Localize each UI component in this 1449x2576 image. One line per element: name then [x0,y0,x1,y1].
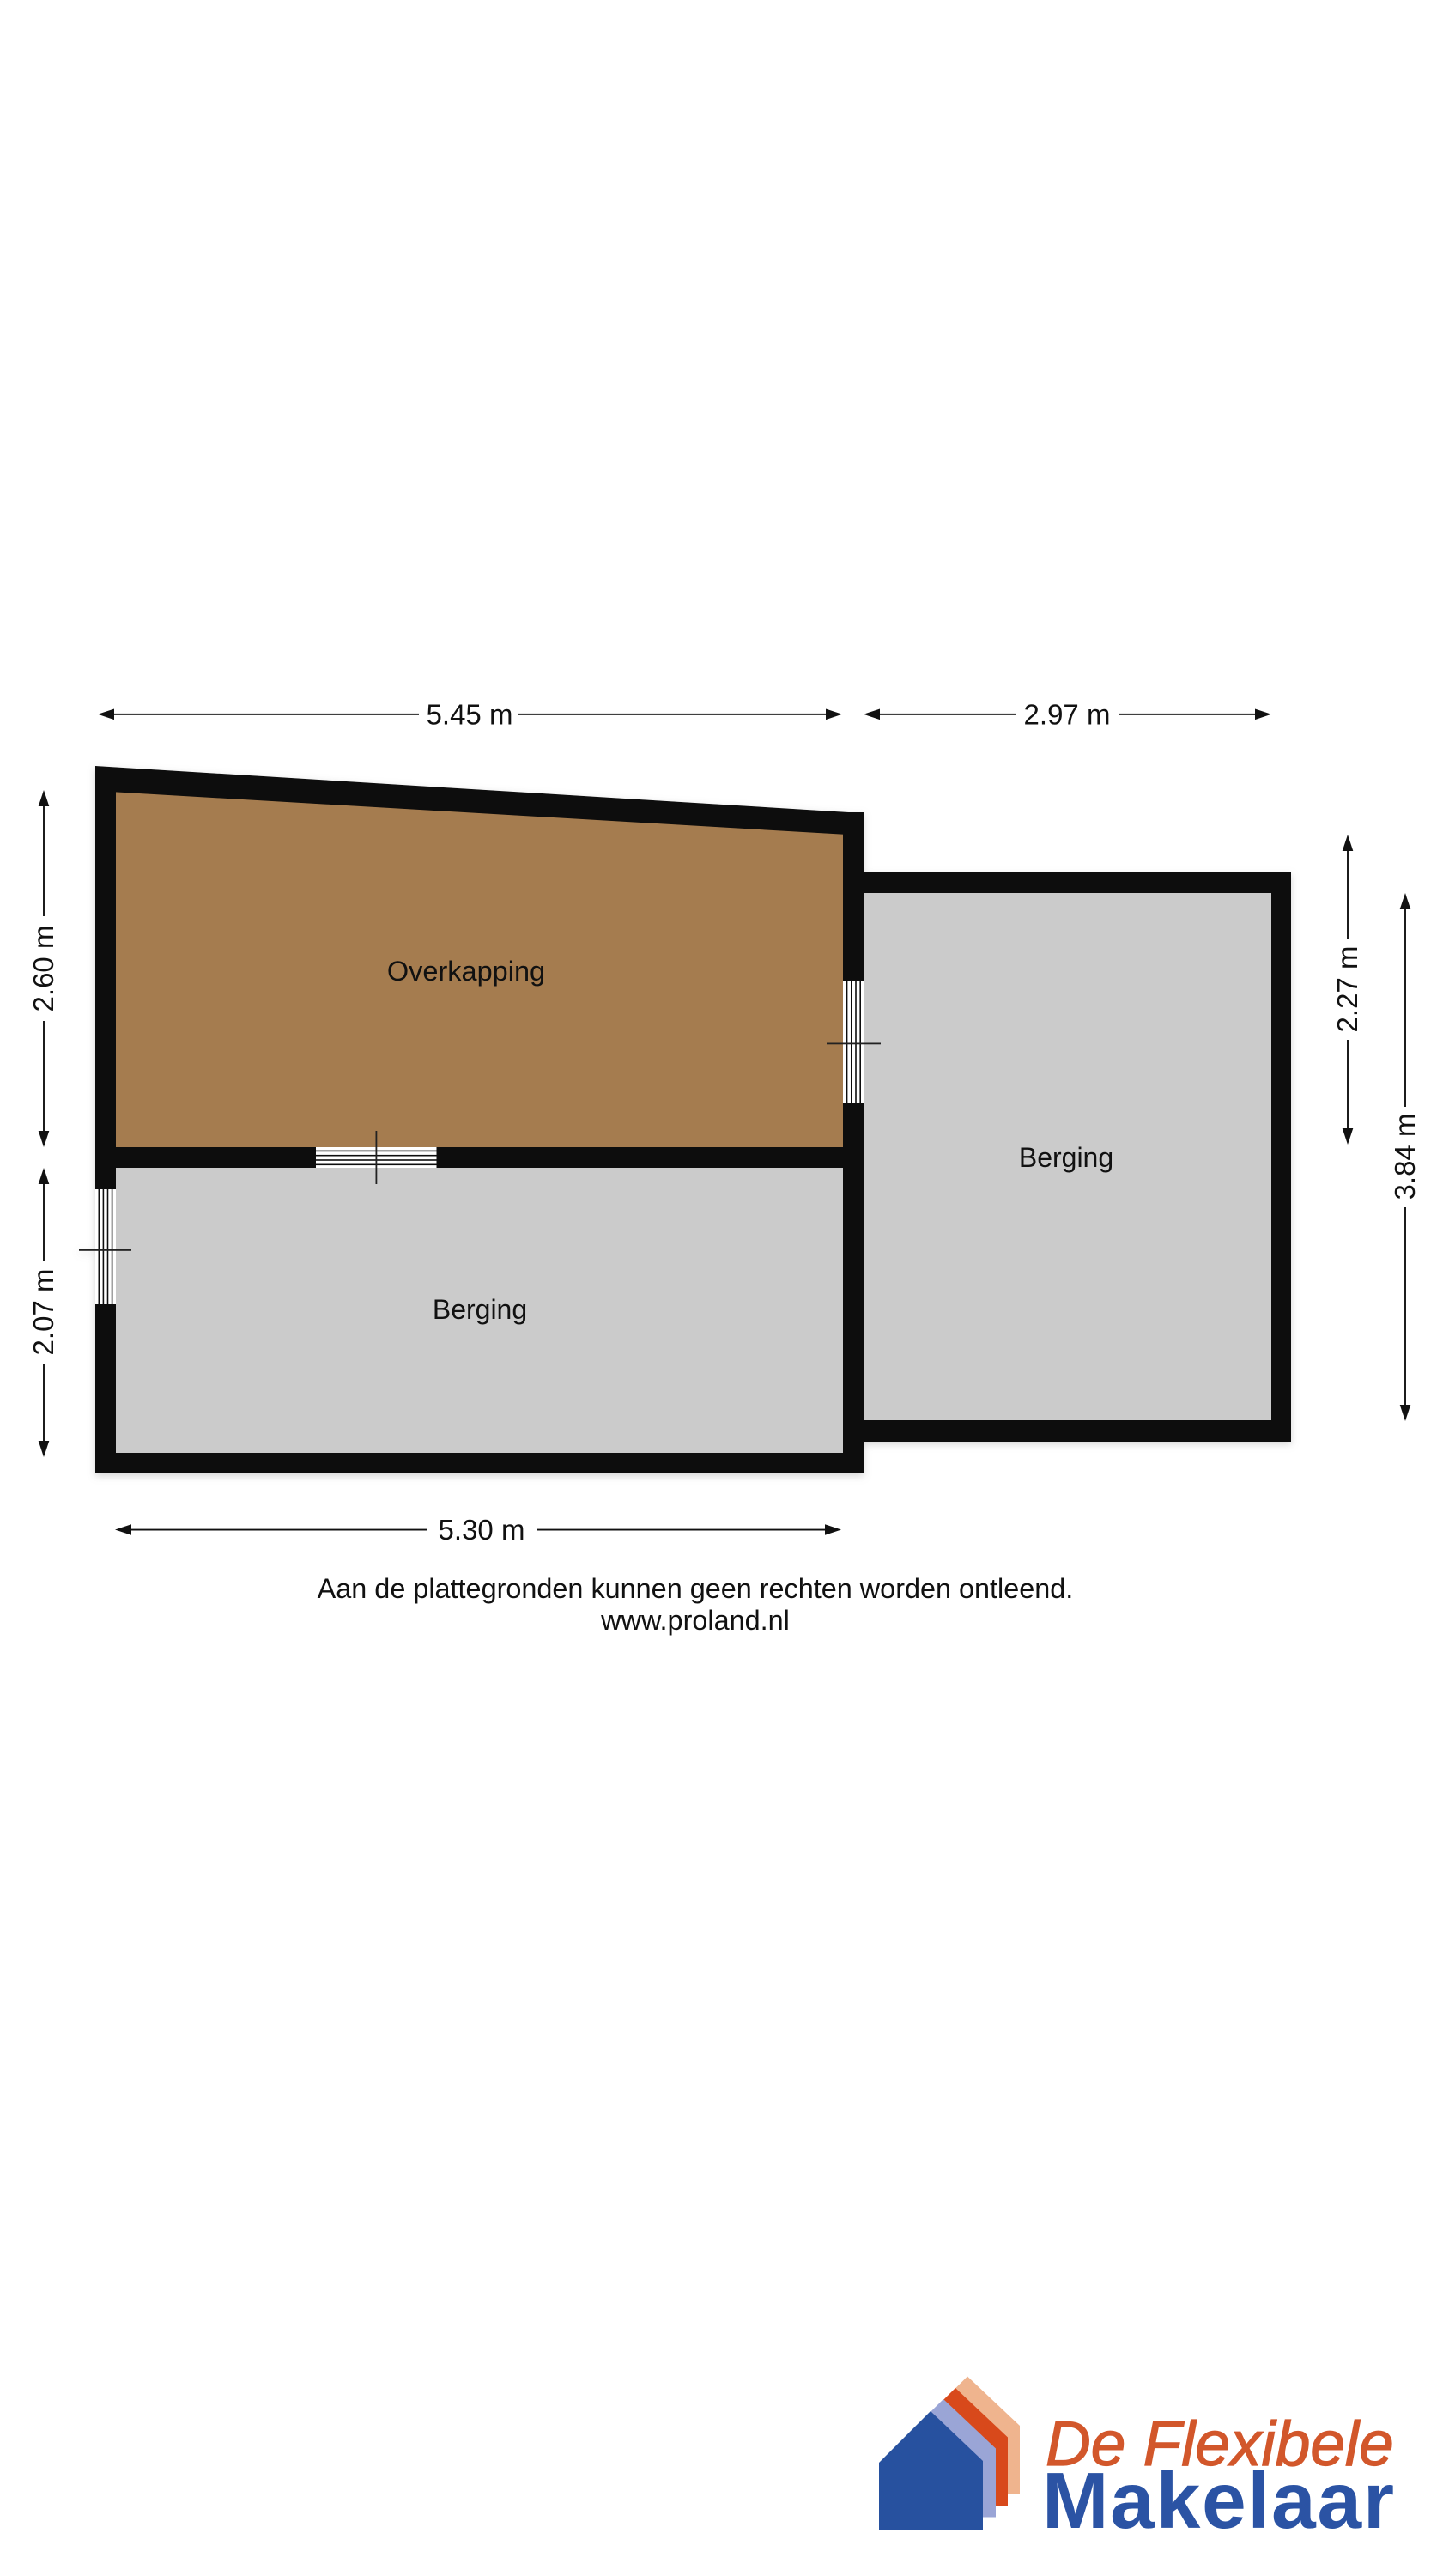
svg-text:2.97 m: 2.97 m [1024,699,1111,731]
svg-text:2.07 m: 2.07 m [27,1269,59,1356]
svg-text:3.84 m: 3.84 m [1389,1114,1421,1200]
svg-text:Berging: Berging [433,1294,527,1325]
svg-text:Aan de plattegronden kunnen ge: Aan de plattegronden kunnen geen rechten… [318,1573,1074,1604]
svg-text:2.27 m: 2.27 m [1331,946,1363,1033]
svg-text:5.45 m: 5.45 m [427,699,513,731]
svg-text:Berging: Berging [1019,1142,1113,1173]
svg-text:www.proland.nl: www.proland.nl [600,1605,790,1636]
svg-text:2.60 m: 2.60 m [27,926,59,1012]
svg-text:5.30 m: 5.30 m [439,1514,525,1546]
svg-text:Makelaar: Makelaar [1042,2456,1396,2545]
svg-text:Overkapping: Overkapping [387,956,545,987]
